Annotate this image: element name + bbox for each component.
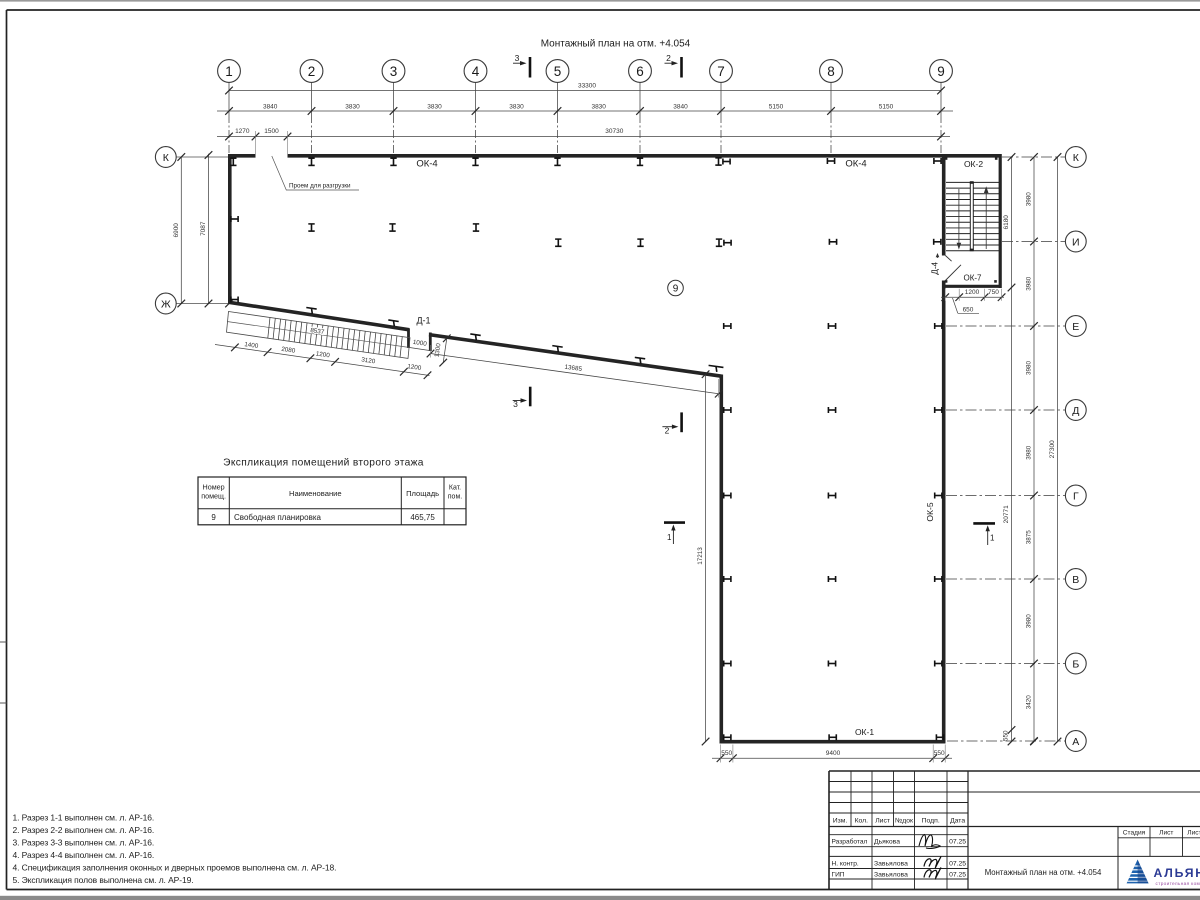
svg-text:3840: 3840 [263,104,278,111]
svg-text:строительная компания: строительная компания [1156,881,1200,886]
svg-text:Монтажный план на отм. +4.054: Монтажный план на отм. +4.054 [985,868,1102,877]
svg-text:1: 1 [990,534,995,543]
svg-text:Е: Е [1072,321,1079,333]
svg-text:Г: Г [1073,490,1079,502]
svg-text:3830: 3830 [509,104,524,111]
svg-text:750: 750 [988,289,999,296]
svg-text:Ж: Ж [161,298,171,310]
svg-text:Изм.: Изм. [833,818,848,825]
svg-text:4. Спецификация заполнения око: 4. Спецификация заполнения оконных и две… [13,863,337,873]
svg-text:4: 4 [472,64,480,79]
svg-text:5: 5 [554,64,562,79]
svg-text:3980: 3980 [1026,192,1033,207]
svg-text:2. Разрез 2-2 выполнен см. л.: 2. Разрез 2-2 выполнен см. л. АР-16. [13,825,155,835]
svg-text:ОК-4: ОК-4 [845,158,866,169]
svg-text:ОК-5: ОК-5 [925,502,935,521]
svg-text:550: 550 [721,750,732,757]
svg-text:Экспликация помещений второго: Экспликация помещений второго этажа [223,458,424,469]
svg-text:30730: 30730 [605,128,623,135]
svg-text:Лист: Лист [1159,830,1173,837]
svg-text:3. Разрез 3-3 выполнен см. л.: 3. Разрез 3-3 выполнен см. л. АР-16. [13,838,155,848]
svg-text:3840: 3840 [673,104,688,111]
svg-text:Подп.: Подп. [922,818,940,825]
svg-text:ГИП: ГИП [832,871,845,878]
svg-text:1200: 1200 [965,289,980,296]
svg-text:6900: 6900 [173,223,180,238]
svg-text:1: 1 [225,64,233,79]
svg-text:650: 650 [963,307,974,314]
svg-text:И: И [1072,236,1080,248]
svg-text:ОК-1: ОК-1 [855,727,874,737]
svg-text:Кол.: Кол. [855,818,869,825]
svg-text:3830: 3830 [345,104,360,111]
svg-text:3: 3 [513,399,518,409]
svg-text:5150: 5150 [879,104,894,111]
svg-text:07.25: 07.25 [949,861,966,868]
svg-text:Свободная планировка: Свободная планировка [234,513,321,522]
svg-text:3420: 3420 [1026,695,1033,710]
svg-text:07.25: 07.25 [949,839,966,846]
svg-text:1270: 1270 [235,128,250,135]
svg-text:1: 1 [667,533,672,542]
svg-text:Номер: Номер [203,483,225,492]
svg-text:Д-4: Д-4 [931,261,940,274]
svg-text:ОК-2: ОК-2 [964,159,983,169]
svg-text:9400: 9400 [826,750,841,757]
svg-text:2: 2 [666,53,671,63]
svg-text:3: 3 [515,53,520,63]
svg-text:К: К [163,152,170,164]
svg-text:Д-1: Д-1 [416,316,430,326]
svg-text:3830: 3830 [427,104,442,111]
svg-text:3980: 3980 [1026,361,1033,376]
svg-text:Дьякова: Дьякова [874,839,900,846]
svg-text:3980: 3980 [1026,445,1033,460]
svg-text:Завьялова: Завьялова [874,861,908,868]
svg-text:Листов: Листов [1187,830,1200,837]
svg-text:Дата: Дата [950,818,965,825]
svg-text:В: В [1072,574,1079,586]
svg-text:ОК-7: ОК-7 [964,273,983,282]
svg-text:20771: 20771 [1003,505,1010,523]
svg-text:№док: №док [895,818,913,825]
svg-text:3875: 3875 [1026,530,1033,545]
svg-text:Стадия: Стадия [1123,830,1146,837]
svg-text:1500: 1500 [264,128,279,135]
svg-text:8: 8 [827,64,835,79]
svg-text:5150: 5150 [769,104,784,111]
svg-text:помещ.: помещ. [201,492,226,501]
svg-text:2: 2 [665,426,670,436]
svg-text:3: 3 [390,64,398,79]
svg-text:3830: 3830 [591,104,606,111]
svg-text:Д: Д [1072,405,1079,417]
svg-text:Наименование: Наименование [289,489,342,498]
svg-text:4. Разрез 4-4 выполнен см. л.: 4. Разрез 4-4 выполнен см. л. АР-16. [13,850,155,860]
svg-text:2: 2 [308,64,316,79]
svg-text:Кат.: Кат. [449,485,461,492]
svg-text:9: 9 [937,64,945,79]
svg-text:3980: 3980 [1026,276,1033,291]
svg-text:5. Экспликация полов выполнена: 5. Экспликация полов выполнена см. л. АР… [13,875,194,885]
svg-text:6180: 6180 [1003,215,1010,230]
svg-text:Площадь: Площадь [406,489,439,498]
svg-text:Монтажный план на отм. +4.054: Монтажный план на отм. +4.054 [541,39,691,50]
svg-text:АЛЬЯНС: АЛЬЯНС [1154,866,1200,880]
svg-text:Проем для разгрузки: Проем для разгрузки [289,182,351,189]
svg-text:А: А [1072,736,1079,748]
svg-text:Разработал: Разработал [832,838,868,846]
svg-text:Н. контр.: Н. контр. [832,861,859,868]
svg-text:465,75: 465,75 [410,513,435,522]
svg-text:Лист: Лист [875,818,890,825]
svg-text:7: 7 [717,64,725,79]
svg-text:550: 550 [934,750,945,757]
svg-text:9: 9 [673,284,679,295]
svg-text:1. Разрез 1-1 выполнен см. л.: 1. Разрез 1-1 выполнен см. л. АР-16. [13,813,155,823]
svg-text:Б: Б [1072,658,1079,670]
svg-text:7087: 7087 [200,221,207,236]
svg-text:17213: 17213 [697,547,704,565]
svg-text:550: 550 [1003,730,1010,741]
svg-text:пом.: пом. [448,494,462,501]
svg-text:27300: 27300 [1049,440,1056,458]
svg-text:33300: 33300 [578,82,596,89]
svg-text:07.25: 07.25 [949,871,966,878]
svg-text:6: 6 [636,64,644,79]
svg-text:9: 9 [211,513,216,522]
svg-text:К: К [1073,152,1080,164]
svg-text:ОК-4: ОК-4 [416,158,437,169]
svg-text:Завьялова: Завьялова [874,871,908,878]
svg-text:3980: 3980 [1026,614,1033,629]
